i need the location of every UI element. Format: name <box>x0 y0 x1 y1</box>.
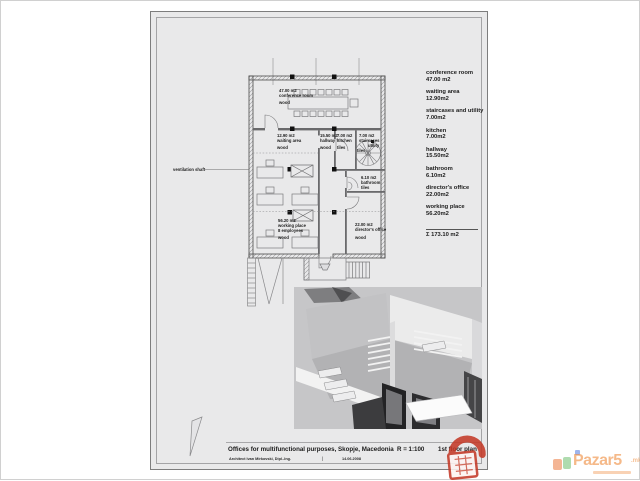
legend-item: hallway 15.50m2 <box>426 147 488 160</box>
conference-floor: wood <box>278 100 290 105</box>
staircases-floor: tiles <box>357 148 366 153</box>
director-name: director's office <box>355 227 387 232</box>
legend-item: conference room 47.00 m2 <box>426 70 488 83</box>
legend-room-name: staircases and utility <box>426 108 488 115</box>
door-conference <box>265 115 278 128</box>
entrance-platform <box>304 258 370 280</box>
north-arrow <box>190 417 202 456</box>
staircases-name2: utility <box>368 143 380 148</box>
legend-room-name: hallway <box>426 147 488 154</box>
ventilation-annotation: ventilation shaft <box>173 167 249 172</box>
watermark-tagline-bar <box>593 471 631 474</box>
legend-room-name: bathroom <box>426 166 488 173</box>
conference-name: conference room <box>279 93 313 98</box>
kitchen-name: kitchen <box>337 138 352 143</box>
legend-room-name: conference room <box>426 70 488 77</box>
legend-item: director's office 22.00m2 <box>426 185 488 198</box>
legend-room-area: 15.50m2 <box>426 153 488 160</box>
room-legend: conference room 47.00 m2 waiting area 12… <box>426 70 488 238</box>
pazar5-watermark: Pazar5 .mk <box>549 450 640 480</box>
kitchen-floor: tiles <box>337 145 346 150</box>
legend-room-area: 7.00m2 <box>426 115 488 122</box>
legend-item: kitchen 7.00m2 <box>426 128 488 141</box>
legend-room-area: 6.10m2 <box>426 173 488 180</box>
legend-item: working place 56.20m2 <box>426 204 488 217</box>
door-director <box>347 197 359 209</box>
waiting-name: waiting area <box>276 138 302 143</box>
legend-item: staircases and utility 7.00m2 <box>426 108 488 121</box>
watermark-brand-text: Pazar5 <box>573 452 622 470</box>
legend-room-name: waiting area <box>426 89 488 96</box>
working-floor: wood <box>277 235 289 240</box>
screenshot-canvas: ventilation shaft 47.00 m2 conference ro… <box>0 0 640 480</box>
legend-room-name: working place <box>426 204 488 211</box>
legend-room-area: 47.00 m2 <box>426 77 488 84</box>
hallway-floor: wood <box>319 145 331 150</box>
legend-room-name: director's office <box>426 185 488 192</box>
legend-room-area: 56.20m2 <box>426 211 488 218</box>
dimension-lines <box>273 58 359 85</box>
legend-total-area: Σ 173.10 m2 <box>426 229 478 238</box>
legend-item: bathroom 6.10m2 <box>426 166 488 179</box>
legend-room-area: 7.00m2 <box>426 134 488 141</box>
legend-room-area: 12.90m2 <box>426 96 488 103</box>
watermark-brand-suffix: .mk <box>631 458 640 464</box>
legend-room-area: 22.00m2 <box>426 192 488 199</box>
padlock-watermark-icon <box>442 426 494 480</box>
legend-item: waiting area 12.90m2 <box>426 89 488 102</box>
director-floor: wood <box>354 235 366 240</box>
hallway-name: hallway <box>320 138 336 143</box>
waiting-floor: wood <box>276 145 288 150</box>
watermark-figure-icon <box>553 459 562 470</box>
interior-3d-render <box>294 287 482 429</box>
exterior-stair <box>248 258 284 306</box>
bathroom-floor: tiles <box>361 185 370 190</box>
watermark-figure-icon <box>563 457 571 469</box>
legend-room-name: kitchen <box>426 128 488 135</box>
ventilation-label: ventilation shaft <box>173 167 206 172</box>
working-name2: 8 employees <box>278 228 304 233</box>
bathroom-sink <box>348 182 352 190</box>
